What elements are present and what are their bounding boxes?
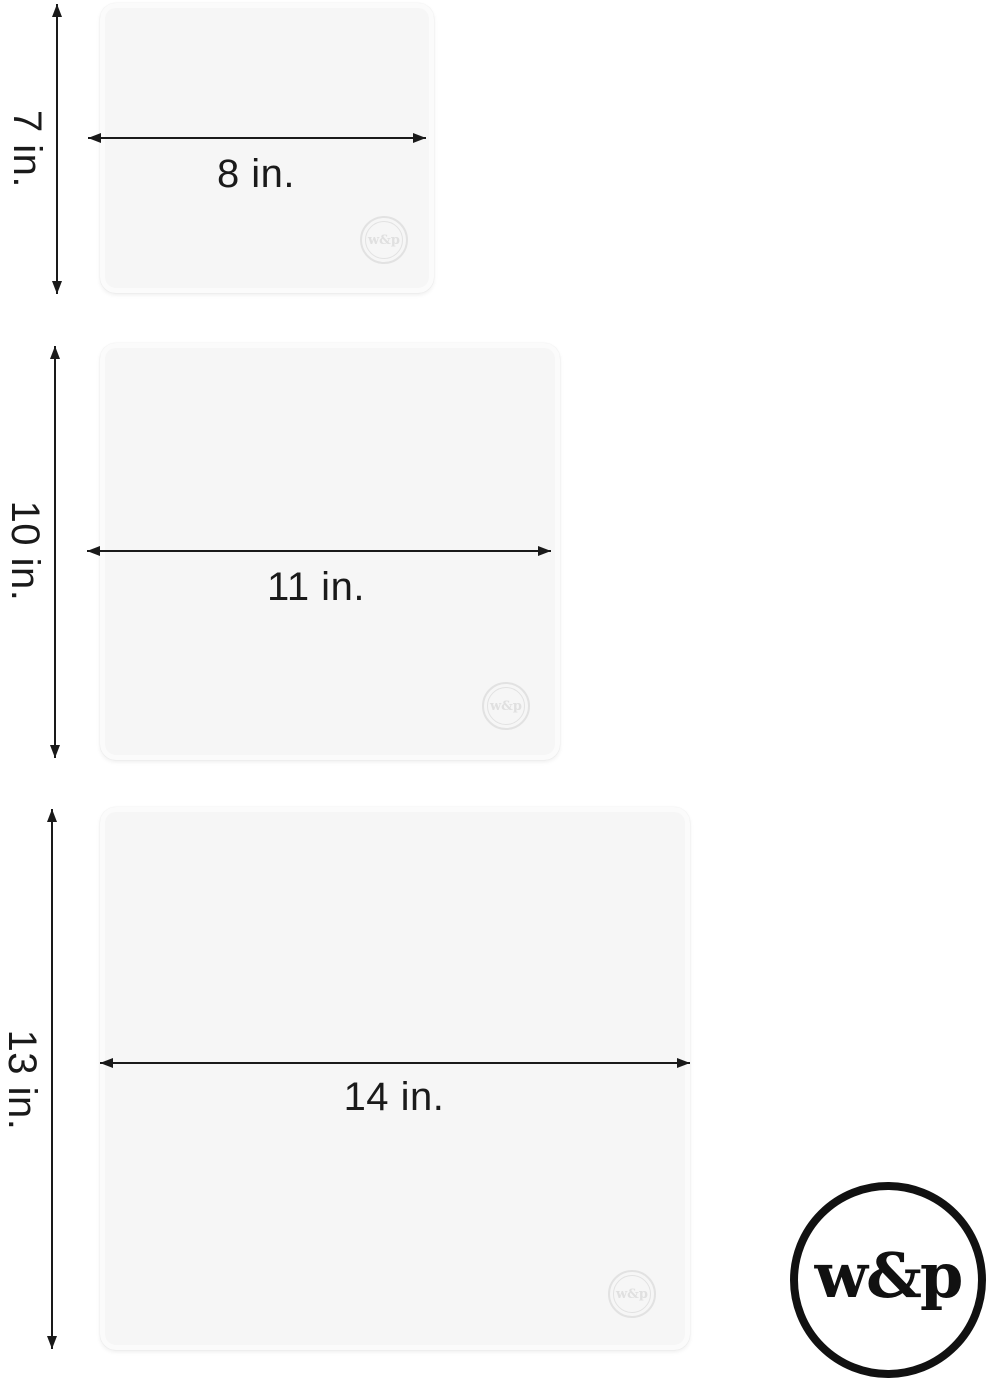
height-label-medium: 10 in. — [3, 471, 47, 631]
product-dimensions-diagram: w&p 7 in. 8 in. w&p 10 in. 11 in. w&p 13… — [0, 0, 996, 1383]
height-dimension-arrow-small — [56, 4, 58, 294]
height-dimension-arrow-large — [51, 809, 53, 1349]
watermark-text: w&p — [368, 234, 400, 247]
width-dimension-arrow-small — [88, 137, 426, 139]
brand-logo-circle: w&p — [790, 1182, 986, 1378]
watermark-inner-circle: w&p — [487, 687, 525, 725]
height-label-large: 13 in. — [0, 1000, 44, 1160]
watermark-logo-large: w&p — [608, 1270, 656, 1318]
brand-logo-text: w&p — [815, 1245, 962, 1315]
watermark-inner-circle: w&p — [365, 221, 403, 259]
watermark-logo-small: w&p — [360, 216, 408, 264]
watermark-inner-circle: w&p — [613, 1275, 651, 1313]
watermark-text: w&p — [616, 1288, 648, 1301]
watermark-logo-medium: w&p — [482, 682, 530, 730]
height-dimension-arrow-medium — [54, 346, 56, 758]
watermark-text: w&p — [490, 700, 522, 713]
height-label-small: 7 in. — [5, 69, 49, 229]
width-dimension-arrow-large — [100, 1062, 690, 1064]
width-label-large: 14 in. — [294, 1075, 494, 1119]
width-label-medium: 11 in. — [216, 565, 416, 609]
width-label-small: 8 in. — [156, 152, 356, 196]
width-dimension-arrow-medium — [87, 550, 551, 552]
